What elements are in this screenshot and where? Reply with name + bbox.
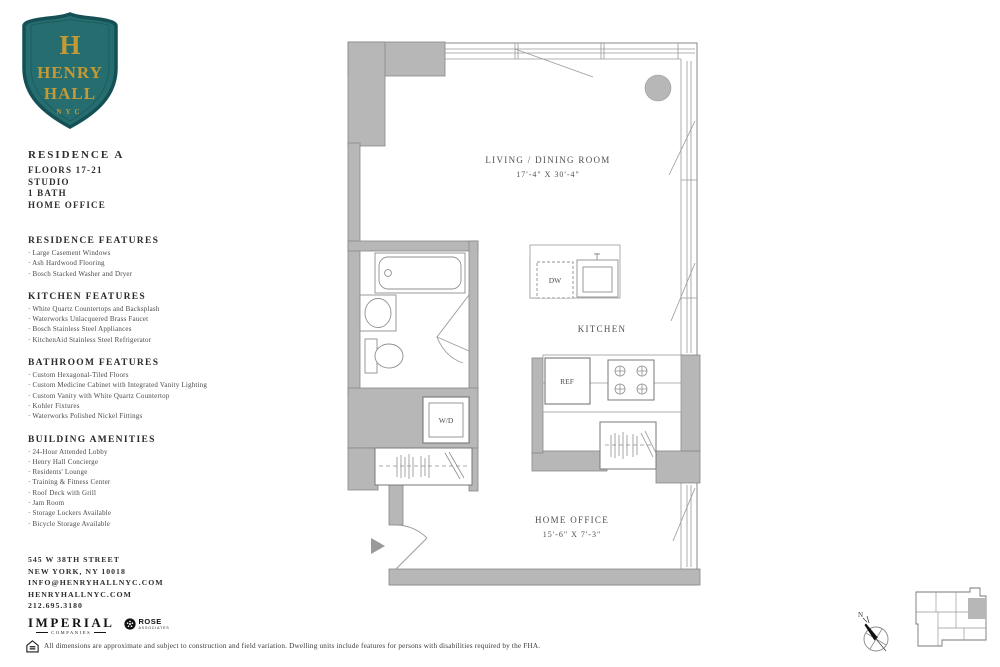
street-address: 545 W 38TH STREET xyxy=(28,554,164,566)
wall-entry-jamb xyxy=(389,485,403,525)
feature-item: Jam Room xyxy=(28,498,278,508)
residence-floors: FLOORS 17-21 xyxy=(28,165,124,177)
refrigerator-label: REF xyxy=(560,377,574,386)
website-url: HENRYHALLNYC.COM xyxy=(28,589,164,601)
feature-item: Bosch Stacked Washer and Dryer xyxy=(28,269,278,279)
wall-left-of-ref xyxy=(532,358,543,453)
feature-item: KitchenAid Stainless Steel Refrigerator xyxy=(28,335,278,345)
wall-kitchen-office-divider xyxy=(532,451,607,471)
section-residence-features: RESIDENCE FEATURES Large Casement Window… xyxy=(28,236,278,279)
living-room-label: LIVING / DINING ROOM xyxy=(485,155,610,165)
dishwasher-label: DW xyxy=(549,276,562,285)
compass-rose: N xyxy=(846,606,906,667)
key-plan xyxy=(908,582,994,661)
feature-item: Roof Deck with Grill xyxy=(28,488,278,498)
section-bathroom-features: BATHROOM FEATURES Custom Hexagonal-Tiled… xyxy=(28,358,278,421)
feature-item: Ash Hardwood Flooring xyxy=(28,258,278,268)
casement-swing-right-2 xyxy=(671,263,695,321)
structural-column xyxy=(645,75,671,101)
compass-north-arrow xyxy=(863,616,869,623)
feature-item: Residents' Lounge xyxy=(28,467,278,477)
section-kitchen-features: KITCHEN FEATURES White Quartz Countertop… xyxy=(28,292,278,345)
top-window-glazing xyxy=(445,49,695,53)
feature-item: Custom Hexagonal-Tiled Floors xyxy=(28,370,278,380)
toilet-bowl xyxy=(375,344,403,368)
email-address: INFO@HENRYHALLNYC.COM xyxy=(28,577,164,589)
wall-left xyxy=(348,143,360,395)
disclaimer-text: All dimensions are approximate and subje… xyxy=(44,640,540,651)
wall-top-left-vertical xyxy=(348,42,385,146)
bathtub-drain xyxy=(385,270,392,277)
section-building-amenities: BUILDING AMENITIES 24-Hour Attended Lobb… xyxy=(28,435,278,529)
feature-item: Waterworks Unlacquered Brass Faucet xyxy=(28,314,278,324)
feature-item: Bosch Stainless Steel Appliances xyxy=(28,324,278,334)
feature-item: Storage Lockers Available xyxy=(28,508,278,518)
wall-left-of-closet xyxy=(348,448,378,490)
phone-number: 212.695.3180 xyxy=(28,600,164,612)
rose-wordmark: ROSE xyxy=(138,618,169,626)
shield-icon: H HENRY HALL NYC xyxy=(18,10,122,130)
rose-subtitle: ASSOCIATES xyxy=(138,627,169,631)
henry-hall-logo: H HENRY HALL NYC xyxy=(18,10,122,135)
wall-right-between-windows xyxy=(681,355,700,451)
feature-item: Henry Hall Concierge xyxy=(28,457,278,467)
residence-title: RESIDENCE A xyxy=(28,149,124,161)
rose-logo: ROSE ASSOCIATES xyxy=(124,618,169,630)
key-plan-highlighted-unit xyxy=(968,598,986,619)
equal-housing-icon xyxy=(26,640,39,653)
feature-item: Training & Fitness Center xyxy=(28,477,278,487)
feature-item: Custom Vanity with White Quartz Countert… xyxy=(28,391,278,401)
feature-item: 24-Hour Attended Lobby xyxy=(28,447,278,457)
feature-sections: RESIDENCE FEATURES Large Casement Window… xyxy=(28,236,278,542)
feature-item: Waterworks Polished Nickel Fittings xyxy=(28,411,278,421)
contact-block: 545 W 38TH STREET NEW YORK, NY 10018 INF… xyxy=(28,554,164,612)
city-address: NEW YORK, NY 10018 xyxy=(28,566,164,578)
compass-north-label: N xyxy=(858,611,863,619)
rose-flower-icon xyxy=(124,618,136,630)
residence-summary: RESIDENCE A FLOORS 17-21 STUDIO 1 BATH H… xyxy=(28,149,124,211)
entry-door-leaf xyxy=(396,538,427,569)
top-window-mullions xyxy=(515,43,678,59)
range xyxy=(608,360,654,400)
wall-right-block xyxy=(656,451,700,483)
bathroom-door-swing xyxy=(437,337,463,363)
entry-door-swing xyxy=(396,525,427,538)
wall-bottom xyxy=(389,569,700,585)
living-room-dimensions: 17'-4" X 30'-4" xyxy=(516,170,580,179)
imperial-logo: IMPERIAL COMPANIES xyxy=(28,616,114,635)
section-heading: BATHROOM FEATURES xyxy=(28,358,278,368)
plan-perimeter xyxy=(389,43,697,585)
vanity-sink-basin xyxy=(365,299,391,328)
casement-swing-office xyxy=(673,488,695,541)
disclaimer-row: All dimensions are approximate and subje… xyxy=(26,640,546,653)
home-office-dimensions: 15'-6" X 7'-3" xyxy=(543,530,602,539)
partner-logos: IMPERIAL COMPANIES ROSE ASSOCIATES xyxy=(28,616,169,635)
floor-plan: LIVING / DINING ROOM 17'-4" X 30'-4" KIT… xyxy=(345,33,705,595)
logo-city: NYC xyxy=(56,108,83,116)
feature-item: Kohler Fixtures xyxy=(28,401,278,411)
logo-name-line1: HENRY xyxy=(37,63,103,82)
imperial-wordmark: IMPERIAL xyxy=(28,616,114,629)
section-heading: RESIDENCE FEATURES xyxy=(28,236,278,246)
kitchen-sink-basin xyxy=(583,267,612,292)
washer-dryer-label: W/D xyxy=(439,416,454,425)
section-heading: KITCHEN FEATURES xyxy=(28,292,278,302)
compass-needle-tail xyxy=(876,639,886,651)
feature-item: Large Casement Windows xyxy=(28,248,278,258)
right-window-mullions xyxy=(681,180,697,298)
kitchen-label: KITCHEN xyxy=(578,324,627,334)
section-heading: BUILDING AMENITIES xyxy=(28,435,278,445)
feature-item: Custom Medicine Cabinet with Integrated … xyxy=(28,380,278,390)
logo-name-line2: HALL xyxy=(44,84,96,103)
imperial-subtitle: COMPANIES xyxy=(36,630,106,635)
residence-extra: HOME OFFICE xyxy=(28,200,124,212)
logo-initial: H xyxy=(59,30,80,60)
wall-bathroom-top xyxy=(348,241,478,251)
feature-item: Bicycle Storage Available xyxy=(28,519,278,529)
residence-type: STUDIO xyxy=(28,177,124,189)
feature-item: White Quartz Countertops and Backsplash xyxy=(28,304,278,314)
residence-baths: 1 BATH xyxy=(28,188,124,200)
home-office-label: HOME OFFICE xyxy=(535,515,609,525)
entry-arrow-icon xyxy=(371,538,385,554)
bathroom-door-leaf xyxy=(437,295,469,351)
